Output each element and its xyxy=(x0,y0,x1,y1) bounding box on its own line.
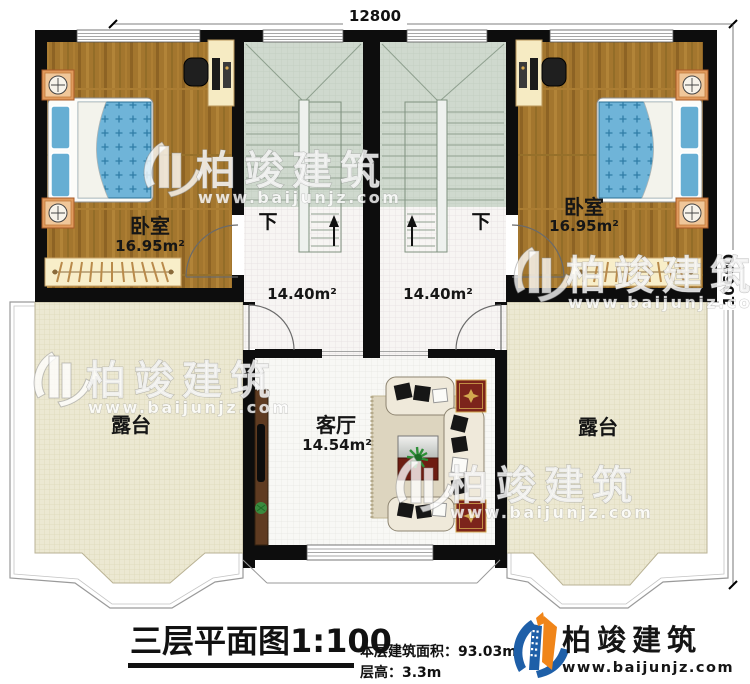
nightstand-right-bottom xyxy=(676,198,708,228)
brand-name: 柏竣建筑 xyxy=(562,623,702,657)
bedroom-left-area: 16.95m² xyxy=(115,237,185,255)
stairhall-left-area: 14.40m² xyxy=(267,285,337,303)
wardrobe-left xyxy=(45,258,181,286)
bedroom-right-name: 卧室 xyxy=(564,195,604,219)
terrace-right-name: 露台 xyxy=(578,415,618,439)
watermark-url: www.baijunjz.com xyxy=(568,293,750,312)
nightstand-right-top xyxy=(676,70,708,100)
stair-right-down-label: 下 xyxy=(471,211,490,233)
stair-left-down-label: 下 xyxy=(258,211,277,233)
stairhall-right-area: 14.40m² xyxy=(403,285,473,303)
bedroom-right-area: 16.95m² xyxy=(549,217,619,235)
bed-right xyxy=(597,98,702,202)
nightstand-left-top xyxy=(42,70,74,100)
watermark-url: www.baijunjz.com xyxy=(198,188,401,207)
living-room-name: 客厅 xyxy=(315,413,356,437)
dimension-top-value: 12800 xyxy=(349,7,401,25)
floor-height-text: 层高：3.3m xyxy=(360,664,441,681)
title-underline xyxy=(128,663,354,668)
opening-right xyxy=(380,349,428,358)
plan-title: 三层平面图1:100 xyxy=(130,622,392,660)
terrace-left xyxy=(10,302,243,608)
floorplan-drawing: 卧室 16.95m² 卧室 16.95m² 下 下 14.40m² 14.40m… xyxy=(0,0,750,684)
floor-mat-top xyxy=(456,380,486,412)
bed-left xyxy=(48,98,153,202)
watermark-url: www.baijunjz.com xyxy=(88,398,291,417)
floorplan-page: 卧室 16.95m² 卧室 16.95m² 下 下 14.40m² 14.40m… xyxy=(0,0,750,684)
opening-left xyxy=(322,349,363,358)
sofa-top xyxy=(386,377,454,415)
brand-website: www.baijunjz.com xyxy=(562,660,734,676)
living-room-area: 14.54m² xyxy=(302,436,372,454)
terrace-right xyxy=(507,302,728,608)
nightstand-left-bottom xyxy=(42,198,74,228)
watermark-url: www.baijunjz.com xyxy=(450,503,653,522)
floor-area-text: 本层建筑面积：93.03m² xyxy=(360,643,523,660)
bedroom-left-name: 卧室 xyxy=(130,214,170,238)
